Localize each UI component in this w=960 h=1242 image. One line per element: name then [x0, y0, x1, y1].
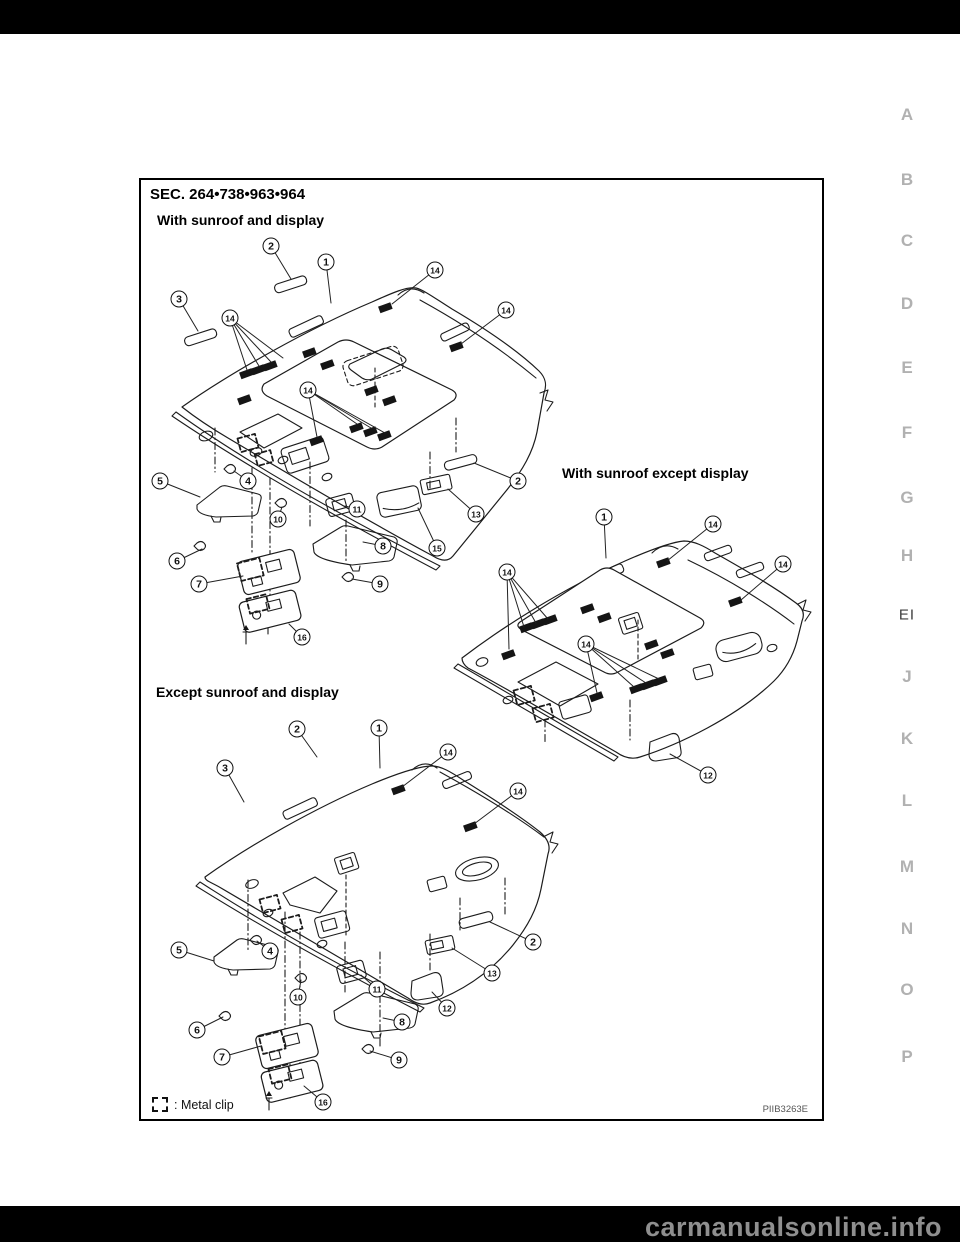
map-lamp-7 [237, 548, 302, 595]
clip-6 [194, 542, 206, 551]
section-tab-o: O [891, 980, 923, 1000]
section-tab-e: E [891, 358, 923, 378]
watermark: carmanualsonline.info [645, 1212, 942, 1242]
section-tab-p: P [891, 1047, 923, 1067]
section-tab-b: B [891, 170, 923, 190]
diagram-label-with-sunroof-except-display: With sunroof except display [562, 465, 749, 481]
grab-handle-3 [184, 328, 218, 347]
diagram-label-with-sunroof-display: With sunroof and display [157, 212, 324, 228]
sun-visor-5b [214, 939, 278, 975]
section-tab-c: C [891, 231, 923, 251]
metal-clip-legend: : Metal clip [152, 1097, 234, 1112]
section-tab-f: F [891, 423, 923, 443]
clip-9b [362, 1045, 374, 1054]
diagram-1-headliner [172, 275, 553, 644]
diagram-label-except-sunroof-display: Except sunroof and display [156, 684, 339, 700]
manual-page: 2114314141454210111315687916114141414122… [0, 0, 960, 1242]
console-16 [238, 589, 302, 644]
section-tab-k: K [891, 729, 923, 749]
section-tab-ei: EI [891, 607, 923, 624]
sun-visor-8b [334, 993, 418, 1038]
figure-code: PIIB3263E [740, 1104, 808, 1115]
section-title: SEC. 264•738•963•964 [150, 186, 305, 203]
clip-10 [275, 499, 287, 508]
section-tab-n: N [891, 919, 923, 939]
clip-4 [224, 465, 236, 474]
exploded-diagram-art [0, 0, 960, 1242]
legend-text: : Metal clip [174, 1098, 234, 1112]
clip-9 [342, 573, 354, 582]
section-tab-j: J [891, 667, 923, 687]
diagram-3-headliner [196, 764, 558, 1110]
section-tab-a: A [891, 105, 923, 125]
section-tab-l: L [891, 791, 923, 811]
section-tab-h: H [891, 546, 923, 566]
section-tab-d: D [891, 294, 923, 314]
sun-visor-8 [313, 526, 397, 571]
metal-clip-symbol [152, 1097, 168, 1112]
section-tab-g: G [891, 488, 923, 508]
clip-6b [219, 1012, 231, 1021]
section-tab-m: M [891, 857, 923, 877]
